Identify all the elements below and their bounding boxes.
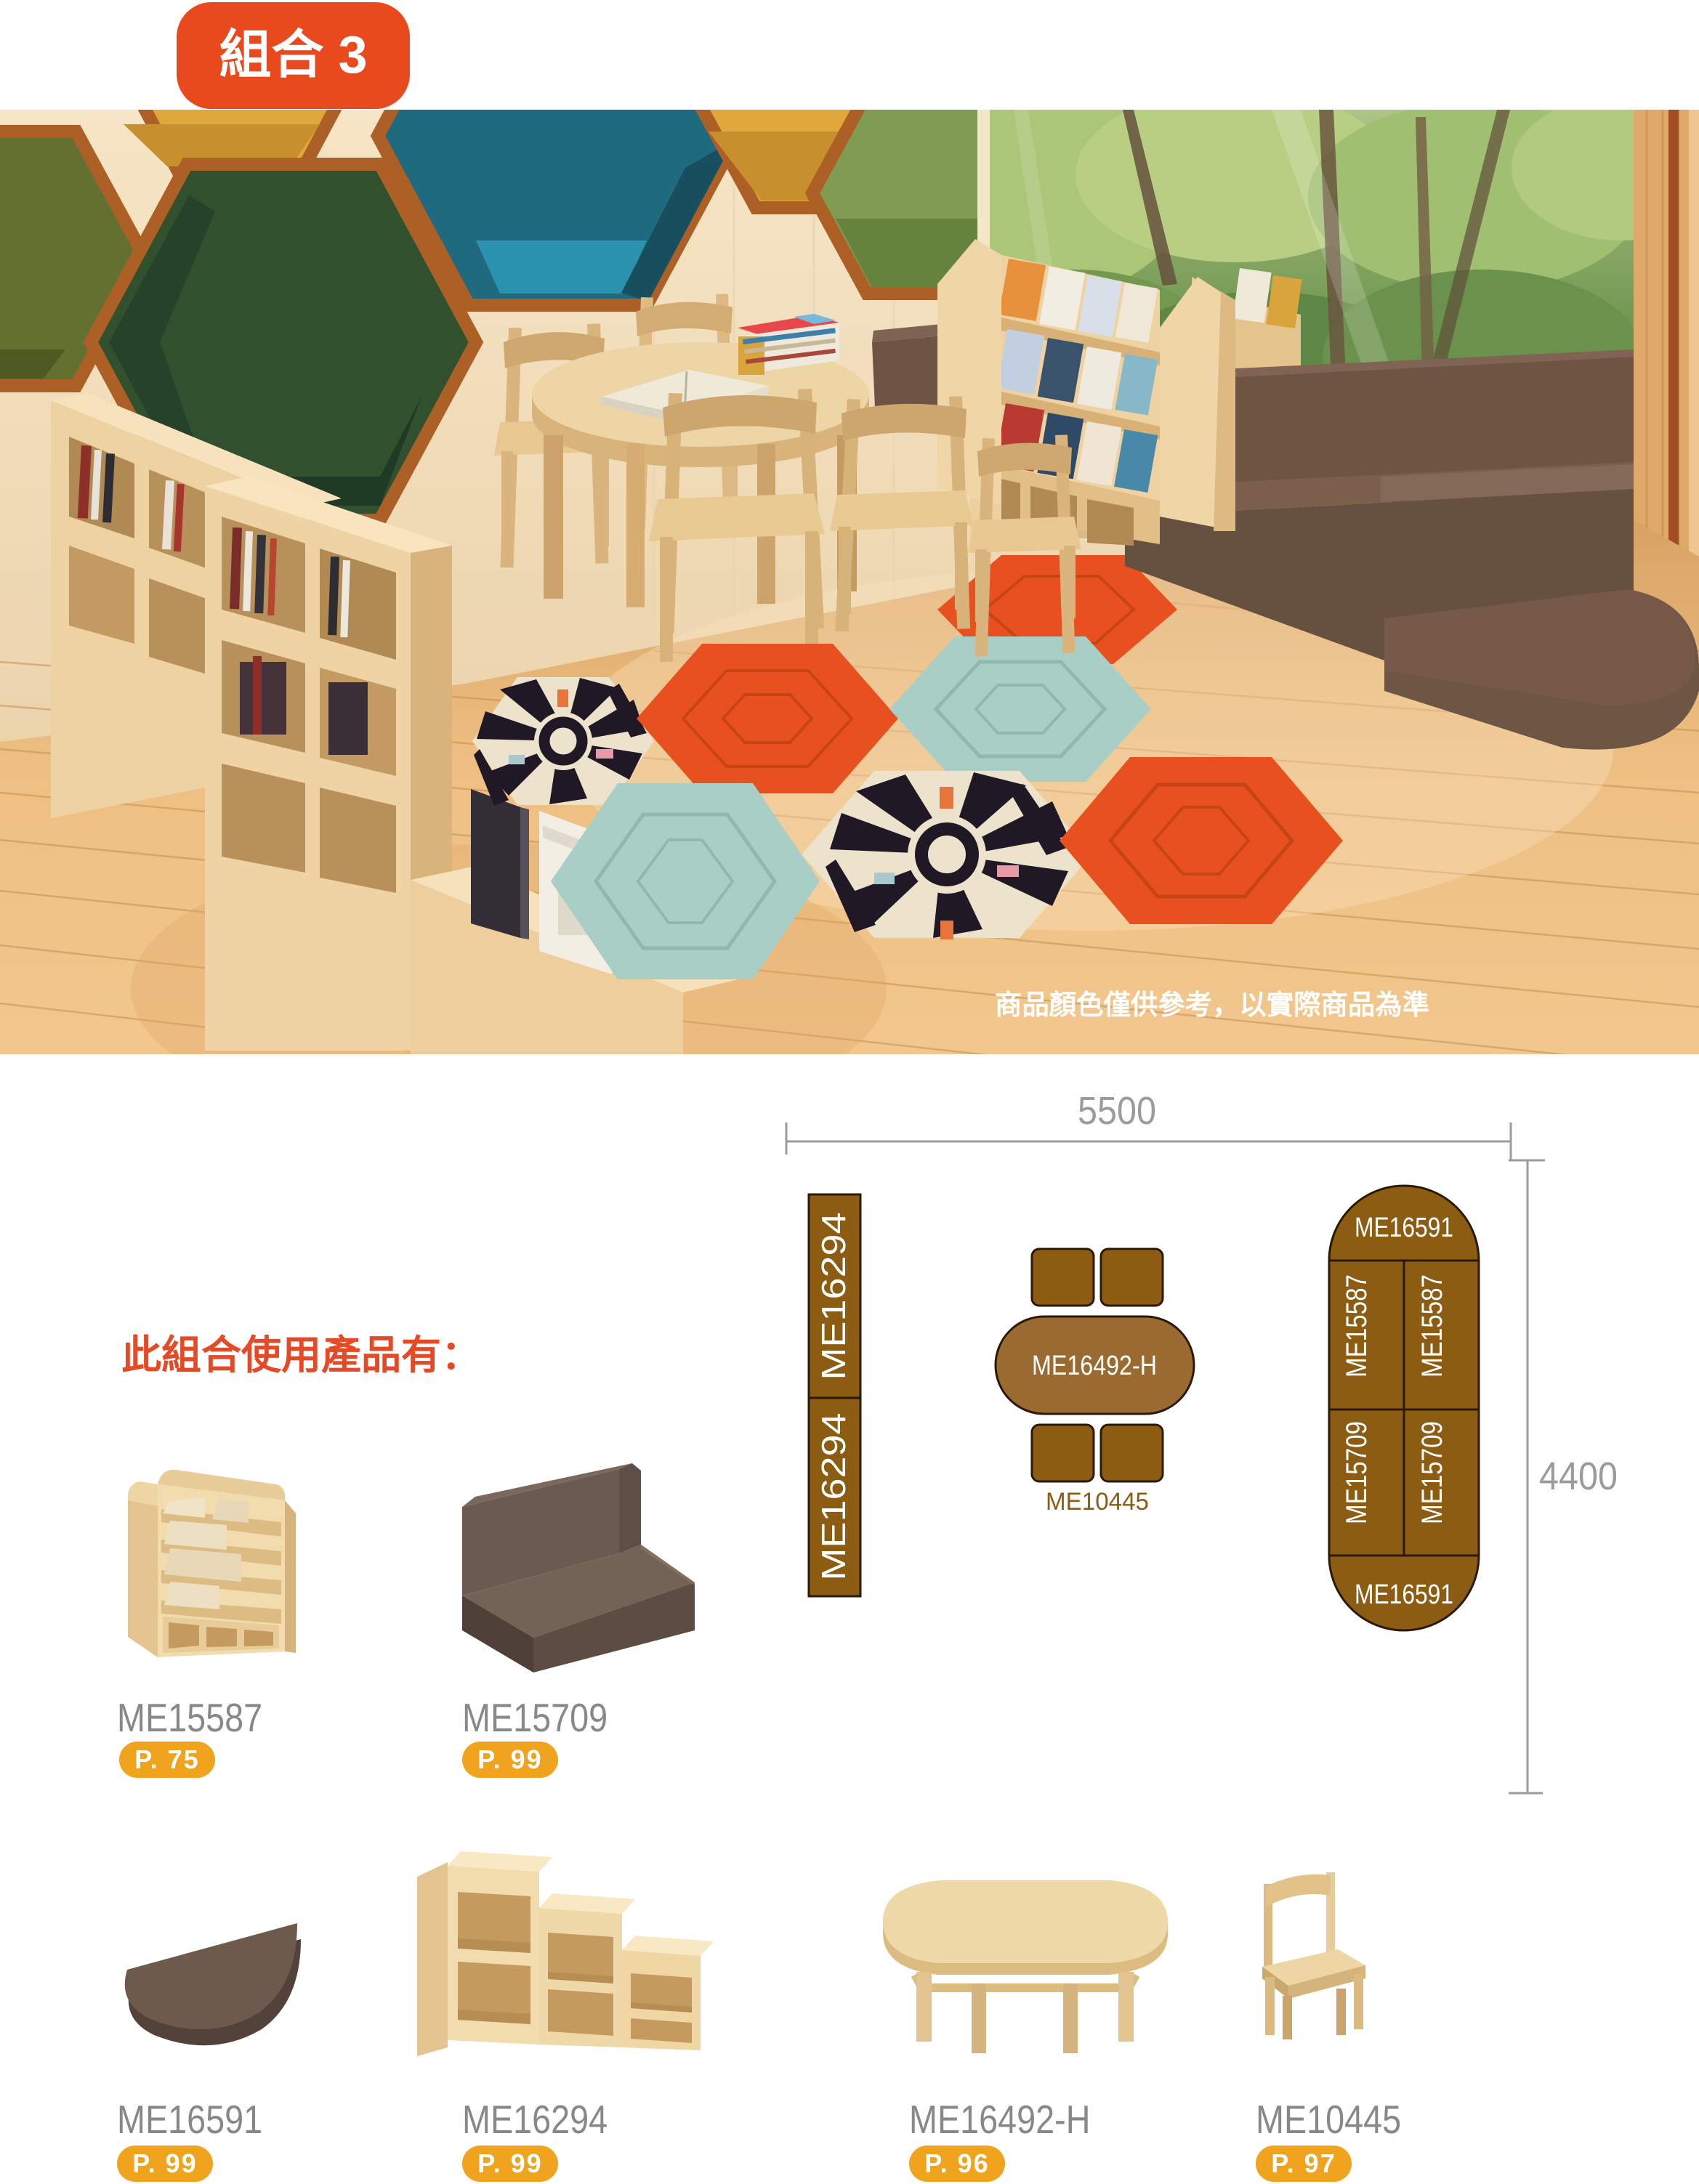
svg-text:4400: 4400 <box>1539 1455 1618 1498</box>
svg-text:5500: 5500 <box>1078 1089 1156 1133</box>
svg-text:商品顏色僅供參考，以實際商品為準: 商品顏色僅供參考，以實際商品為準 <box>995 990 1429 1021</box>
svg-text:ME16294: ME16294 <box>815 1213 852 1380</box>
svg-text:ME15709: ME15709 <box>1416 1421 1448 1524</box>
svg-text:ME16294: ME16294 <box>815 1413 852 1581</box>
svg-text:ME16492-H: ME16492-H <box>1032 1351 1157 1381</box>
svg-text:ME10445: ME10445 <box>1046 1488 1149 1516</box>
svg-text:ME16591: ME16591 <box>1355 1580 1453 1610</box>
svg-text:ME15587: ME15587 <box>1341 1274 1373 1378</box>
svg-text:ME16591: ME16591 <box>1355 1213 1453 1243</box>
svg-text:ME15587: ME15587 <box>1416 1274 1448 1378</box>
svg-text:ME15709: ME15709 <box>1341 1421 1373 1524</box>
